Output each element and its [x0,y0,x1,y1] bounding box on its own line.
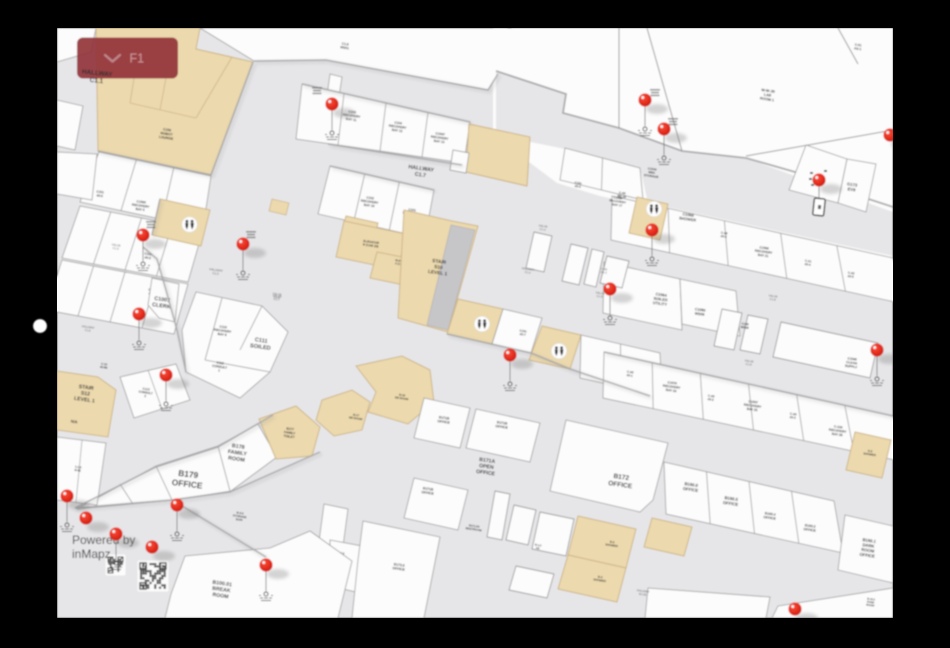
svg-text:C1.1: C1.1 [89,77,104,85]
svg-text:F1: F1 [130,52,145,66]
svg-text:N/A: N/A [70,419,78,425]
svg-text:inMapz: inMapz [72,547,111,561]
